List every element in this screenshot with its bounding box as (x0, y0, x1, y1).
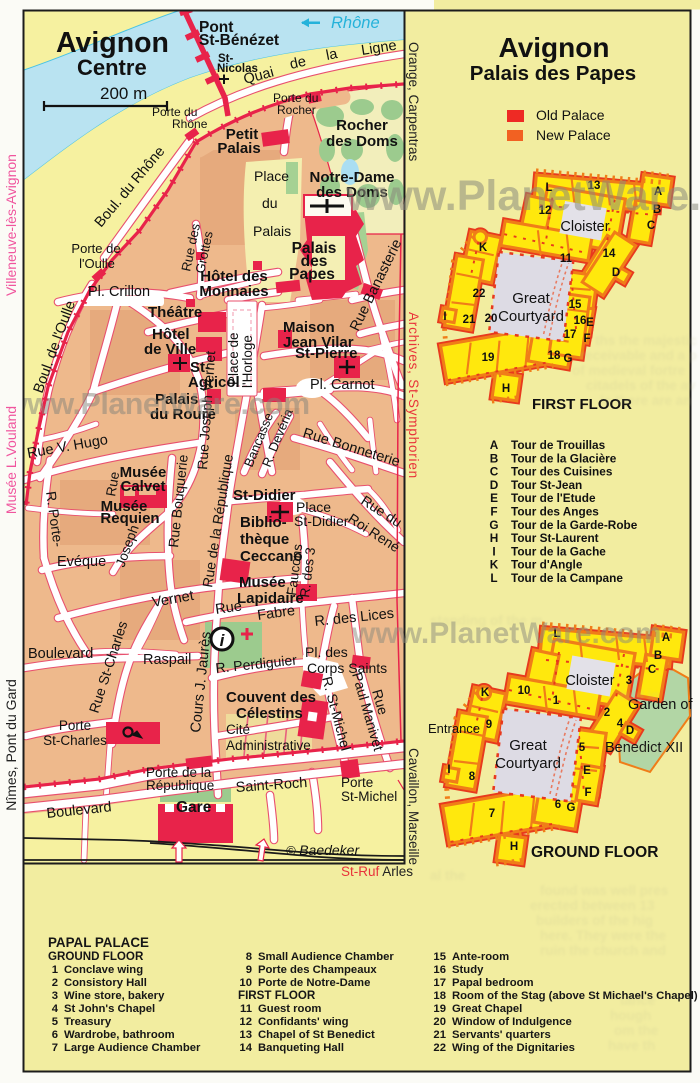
svg-text:Monnaies: Monnaies (199, 283, 268, 300)
svg-text:F: F (583, 333, 590, 345)
svg-text:Room of the Stag (above St Mic: Room of the Stag (above St Michael's Cha… (452, 990, 698, 1002)
svg-text:Chapel of St Benedict: Chapel of St Benedict (258, 1029, 375, 1041)
svg-text:ths the majestic: ths the majestic (595, 333, 698, 348)
svg-text:Window of Indulgence: Window of Indulgence (452, 1016, 572, 1028)
svg-text:Pl. Crillon: Pl. Crillon (88, 284, 150, 300)
svg-text:Papes: Papes (289, 266, 335, 283)
svg-text:République: République (146, 778, 214, 793)
svg-text:Palais: Palais (253, 223, 291, 239)
svg-text:L: L (490, 571, 497, 585)
svg-text:19: 19 (433, 1003, 446, 1015)
svg-text:16: 16 (574, 315, 587, 327)
svg-text:Great: Great (512, 290, 550, 307)
svg-text:Musée L.Vouland: Musée L.Vouland (3, 406, 19, 514)
svg-text:C: C (490, 465, 499, 479)
svg-text:Tour de Trouillas: Tour de Trouillas (511, 438, 606, 452)
svg-text:Confidants' wing: Confidants' wing (258, 1016, 349, 1028)
svg-text:2: 2 (604, 707, 610, 719)
svg-text:Rhône: Rhône (331, 14, 380, 32)
svg-text:Courtyard: Courtyard (498, 308, 564, 325)
svg-text:tance: tance (620, 993, 656, 1008)
svg-text:Place: Place (254, 168, 289, 184)
svg-text:www.PlanetWare.com: www.PlanetWare.com (345, 172, 700, 220)
svg-text:12: 12 (239, 1016, 252, 1028)
svg-text:thèque: thèque (240, 531, 289, 548)
svg-text:Wing of the Dignitaries: Wing of the Dignitaries (452, 1042, 575, 1054)
svg-text:here. They were the: here. They were the (540, 928, 667, 943)
svg-text:Wine store, bakery: Wine store, bakery (64, 990, 165, 1002)
svg-text:St-Charles: St-Charles (43, 733, 107, 748)
svg-text:Guest room: Guest room (258, 1003, 321, 1015)
svg-text:10: 10 (518, 685, 531, 697)
svg-text:www.PlanetWare.com: www.PlanetWare.com (3, 387, 310, 421)
svg-text:8: 8 (246, 951, 252, 963)
svg-text:al the: al the (430, 868, 466, 883)
svg-text:20: 20 (433, 1016, 446, 1028)
svg-text:Archives, St-Symphorien: Archives, St-Symphorien (406, 312, 421, 479)
svg-text:erected between 13: erected between 13 (530, 898, 655, 913)
svg-text:Banqueting Hall: Banqueting Hall (258, 1042, 344, 1054)
svg-text:New Palace: New Palace (536, 127, 611, 143)
svg-text:Nîmes, Pont du Gard: Nîmes, Pont du Gard (3, 679, 19, 811)
svg-text:H: H (490, 531, 499, 545)
svg-text:E: E (490, 491, 498, 505)
svg-text:Tour de la Gache: Tour de la Gache (511, 544, 606, 558)
svg-text:St-Bénézet: St-Bénézet (199, 32, 279, 49)
svg-text:St-Ruf Arles: St-Ruf Arles (341, 864, 413, 879)
svg-text:200 m: 200 m (100, 84, 147, 103)
svg-text:F: F (584, 787, 591, 799)
svg-text:hough: hough (610, 1008, 651, 1023)
svg-text:21: 21 (433, 1029, 446, 1041)
svg-text:D: D (612, 267, 620, 279)
svg-text:Old Palace: Old Palace (536, 107, 605, 123)
svg-text:Musée: Musée (239, 574, 286, 591)
svg-text:D: D (626, 725, 634, 737)
svg-text:16: 16 (433, 964, 446, 976)
svg-text:Tour des Cuisines: Tour des Cuisines (511, 465, 613, 479)
svg-text:15: 15 (433, 951, 446, 963)
svg-text:Wardrobe, bathroom: Wardrobe, bathroom (64, 1029, 175, 1041)
svg-text:Consistory Hall: Consistory Hall (64, 977, 147, 989)
svg-text:11: 11 (560, 253, 573, 265)
svg-text:Tour d'Angle: Tour d'Angle (511, 558, 583, 572)
svg-text:receivable and a p: receivable and a p (580, 348, 697, 363)
svg-text:I: I (443, 311, 446, 323)
svg-text:Servants' quarters: Servants' quarters (452, 1029, 551, 1041)
svg-text:A: A (662, 632, 670, 644)
svg-text:GROUND FLOOR: GROUND FLOOR (48, 950, 144, 963)
svg-text:Porte: Porte (341, 775, 373, 790)
svg-text:Entrance: Entrance (428, 721, 480, 736)
svg-text:Biblio-: Biblio- (240, 514, 287, 531)
svg-text:om the: om the (614, 1023, 659, 1038)
svg-text:14: 14 (239, 1042, 252, 1054)
svg-text:Rocher: Rocher (336, 117, 388, 134)
svg-text:© Baedeker: © Baedeker (286, 842, 360, 858)
svg-text:21: 21 (463, 314, 476, 326)
svg-text:Corps Saints: Corps Saints (307, 660, 387, 676)
svg-text:Boulevard: Boulevard (28, 646, 93, 662)
svg-text:St-Michel: St-Michel (341, 789, 397, 804)
svg-text:3: 3 (626, 675, 632, 687)
svg-text:4: 4 (52, 1003, 59, 1015)
svg-text:Cloister: Cloister (560, 219, 609, 235)
svg-text:F: F (490, 505, 497, 519)
svg-text:3: 3 (52, 990, 58, 1002)
svg-text:18: 18 (548, 350, 561, 362)
svg-text:1: 1 (553, 695, 560, 707)
svg-text:Cité: Cité (226, 722, 250, 737)
svg-text:Porte de Notre-Dame: Porte de Notre-Dame (258, 977, 370, 989)
svg-text:7: 7 (489, 808, 495, 820)
svg-text:C: C (647, 220, 655, 232)
svg-text:of medieval fortre: of medieval fortre (572, 363, 686, 378)
svg-text:11: 11 (240, 1003, 252, 1015)
svg-text:Tour de la Campane: Tour de la Campane (511, 571, 623, 585)
svg-text:Orange, Carpentras: Orange, Carpentras (406, 42, 421, 162)
svg-text:K: K (479, 242, 488, 254)
svg-text:19: 19 (482, 352, 495, 364)
svg-text:le there are an: le there are an (600, 393, 692, 408)
svg-text:PAPAL PALACE: PAPAL PALACE (48, 935, 149, 950)
svg-text:18: 18 (433, 990, 446, 1002)
svg-text:St-Didier: St-Didier (294, 513, 349, 529)
svg-text:www.PlanetWare.com: www.PlanetWare.com (351, 617, 662, 650)
svg-text:St John's Chapel: St John's Chapel (64, 1003, 155, 1015)
svg-text:D: D (490, 478, 499, 492)
svg-text:Centre: Centre (77, 55, 147, 80)
svg-text:E: E (583, 765, 591, 777)
svg-text:Great Chapel: Great Chapel (452, 1003, 522, 1015)
svg-text:Papal bedroom: Papal bedroom (452, 977, 534, 989)
svg-text:E: E (586, 317, 594, 329)
svg-text:15: 15 (569, 299, 582, 311)
svg-text:5: 5 (52, 1016, 58, 1028)
svg-text:Evéque: Evéque (57, 554, 106, 570)
svg-text:B: B (654, 650, 662, 662)
svg-text:Cloister: Cloister (565, 673, 614, 689)
svg-text:des Doms: des Doms (326, 133, 398, 150)
svg-text:Palais: Palais (217, 140, 260, 157)
svg-text:l'Oulle: l'Oulle (79, 256, 115, 271)
svg-text:hed in: hed in (620, 688, 660, 703)
svg-text:Porte: Porte (59, 718, 91, 733)
svg-text:14: 14 (603, 248, 616, 260)
svg-text:6: 6 (555, 799, 561, 811)
svg-text:Rocher: Rocher (277, 103, 316, 117)
svg-text:have th: have th (608, 1038, 655, 1053)
svg-text:17: 17 (433, 977, 446, 989)
svg-text:St-Didier: St-Didier (233, 487, 296, 504)
svg-text:Calvet: Calvet (120, 478, 165, 495)
svg-text:22: 22 (473, 288, 486, 300)
svg-text:Rhône: Rhône (172, 117, 208, 131)
svg-text:4: 4 (617, 718, 624, 730)
svg-text:10: 10 (239, 977, 252, 989)
svg-text:St-Pierre: St-Pierre (295, 345, 358, 362)
svg-text:K: K (481, 687, 490, 699)
svg-text:Treasury: Treasury (64, 1016, 112, 1028)
svg-text:Gare: Gare (176, 799, 212, 816)
svg-text:builders of the hig: builders of the hig (536, 913, 653, 928)
svg-text:Cavaillon, Marseille: Cavaillon, Marseille (406, 748, 421, 865)
svg-text:G: G (489, 518, 498, 532)
svg-text:Conclave wing: Conclave wing (64, 964, 143, 976)
svg-text:citadels of the av: citadels of the av (586, 378, 696, 393)
svg-text:B: B (490, 451, 499, 465)
svg-text:9: 9 (246, 964, 252, 976)
svg-text:Tour de la Glacière: Tour de la Glacière (511, 451, 617, 465)
svg-text:Ante-room: Ante-room (452, 951, 509, 963)
svg-text:Large Audience Chamber: Large Audience Chamber (64, 1042, 201, 1054)
svg-text:l'Horloge: l'Horloge (240, 335, 255, 388)
svg-text:said he: said he (620, 743, 667, 758)
svg-text:17: 17 (564, 329, 577, 341)
svg-text:found was well pres: found was well pres (540, 883, 668, 898)
svg-text:1: 1 (52, 964, 58, 976)
svg-text:Porte des Champeaux: Porte des Champeaux (258, 964, 377, 976)
svg-text:Pl. des: Pl. des (305, 644, 348, 660)
svg-text:C: C (648, 664, 656, 676)
svg-text:13: 13 (239, 1029, 252, 1041)
svg-text:Palais des Papes: Palais des Papes (470, 62, 636, 85)
svg-text:8: 8 (469, 771, 476, 783)
svg-text:de Ville: de Ville (144, 341, 196, 358)
svg-text:FIRST FLOOR: FIRST FLOOR (238, 989, 316, 1002)
svg-text:K: K (490, 558, 499, 572)
svg-text:Raspail: Raspail (143, 652, 191, 668)
svg-text:I: I (447, 764, 450, 776)
svg-text:Célestins: Célestins (236, 705, 303, 722)
svg-text:Study: Study (452, 964, 484, 976)
svg-text:Administrative: Administrative (226, 738, 311, 753)
svg-text:Great: Great (509, 737, 547, 754)
svg-text:Tour des Anges: Tour des Anges (511, 505, 599, 519)
svg-text:Avignon: Avignon (499, 32, 610, 63)
svg-text:20: 20 (485, 313, 498, 325)
svg-text:G: G (567, 802, 576, 814)
svg-text:H: H (502, 383, 510, 395)
svg-text:Tour St-Laurent: Tour St-Laurent (511, 531, 599, 545)
svg-text:5: 5 (579, 742, 586, 754)
svg-text:GROUND FLOOR: GROUND FLOOR (531, 844, 658, 861)
svg-text:2: 2 (52, 977, 58, 989)
svg-text:Pl. Carnot: Pl. Carnot (310, 377, 374, 393)
svg-text:H: H (510, 841, 518, 853)
svg-text:Villeneuve-lès-Avignon: Villeneuve-lès-Avignon (3, 154, 19, 296)
svg-text:ruin the church and: ruin the church and (540, 943, 666, 958)
svg-text:Porte de: Porte de (71, 241, 120, 256)
svg-text:7: 7 (52, 1042, 58, 1054)
svg-text:Couvent des: Couvent des (226, 689, 316, 706)
svg-text:Tour de la Garde-Robe: Tour de la Garde-Robe (511, 518, 638, 532)
svg-text:Tour de l'Etude: Tour de l'Etude (511, 491, 596, 505)
svg-text:22: 22 (433, 1042, 446, 1054)
svg-text:Tour St-Jean: Tour St-Jean (511, 478, 582, 492)
svg-text:9: 9 (486, 719, 492, 731)
svg-text:du: du (262, 195, 278, 211)
svg-text:Courtyard: Courtyard (495, 755, 561, 772)
svg-text:A: A (490, 438, 499, 452)
svg-text:I: I (492, 544, 495, 558)
svg-text:Small Audience Chamber: Small Audience Chamber (258, 951, 394, 963)
svg-text:6: 6 (52, 1029, 58, 1041)
svg-text:Théâtre: Théâtre (148, 304, 202, 321)
